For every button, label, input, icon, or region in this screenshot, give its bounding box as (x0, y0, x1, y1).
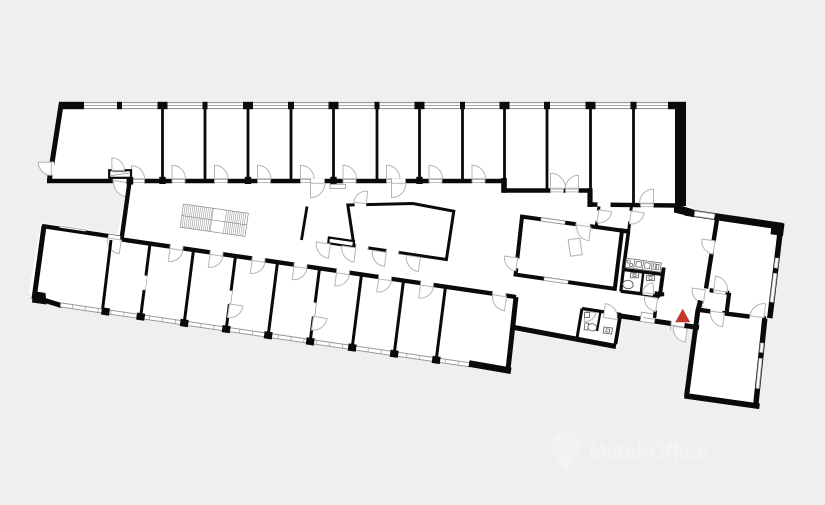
svg-text:MatchOffice: MatchOffice (589, 438, 708, 466)
